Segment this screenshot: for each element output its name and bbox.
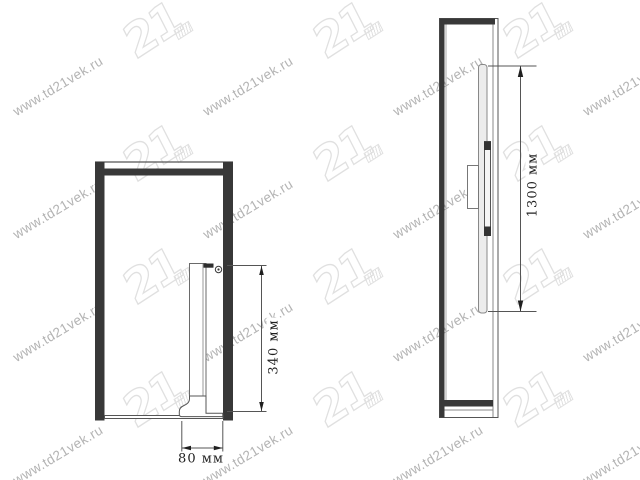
lift-rail-top-cap <box>204 264 214 268</box>
side-view <box>440 19 537 418</box>
dim-arrow-right <box>214 446 223 451</box>
width-dimension-label: 80 мм <box>176 452 226 467</box>
dim-arrow-up <box>518 66 523 77</box>
height-dimension-label: 340 мм <box>267 317 282 376</box>
lift-rail-hook <box>179 396 223 417</box>
dim-arrow-left <box>182 446 191 451</box>
front-view <box>95 162 267 466</box>
dim-arrow-down <box>259 402 264 411</box>
drawing-canvas <box>0 0 640 480</box>
left-post <box>95 162 105 421</box>
right-post <box>223 162 233 421</box>
panel-bottom-bar <box>445 400 494 407</box>
slider-top-cap <box>484 142 491 151</box>
top-rail-bar <box>105 169 224 176</box>
screw-fitting-dot <box>217 268 219 270</box>
length-dimension-label: 1300 мм <box>526 151 541 219</box>
technical-drawing-page: www.td21vek.ru21www.td21vek.ru21www.td21… <box>0 0 640 480</box>
panel-left-edge <box>440 19 445 418</box>
dim-arrow-down <box>518 301 523 312</box>
mount-bracket <box>468 166 479 209</box>
slider-bottom-cap <box>484 227 491 237</box>
lift-rail-body <box>190 264 207 410</box>
slider-rail <box>485 142 491 236</box>
dim-arrow-up <box>259 266 264 275</box>
panel-top-bar <box>440 19 496 25</box>
